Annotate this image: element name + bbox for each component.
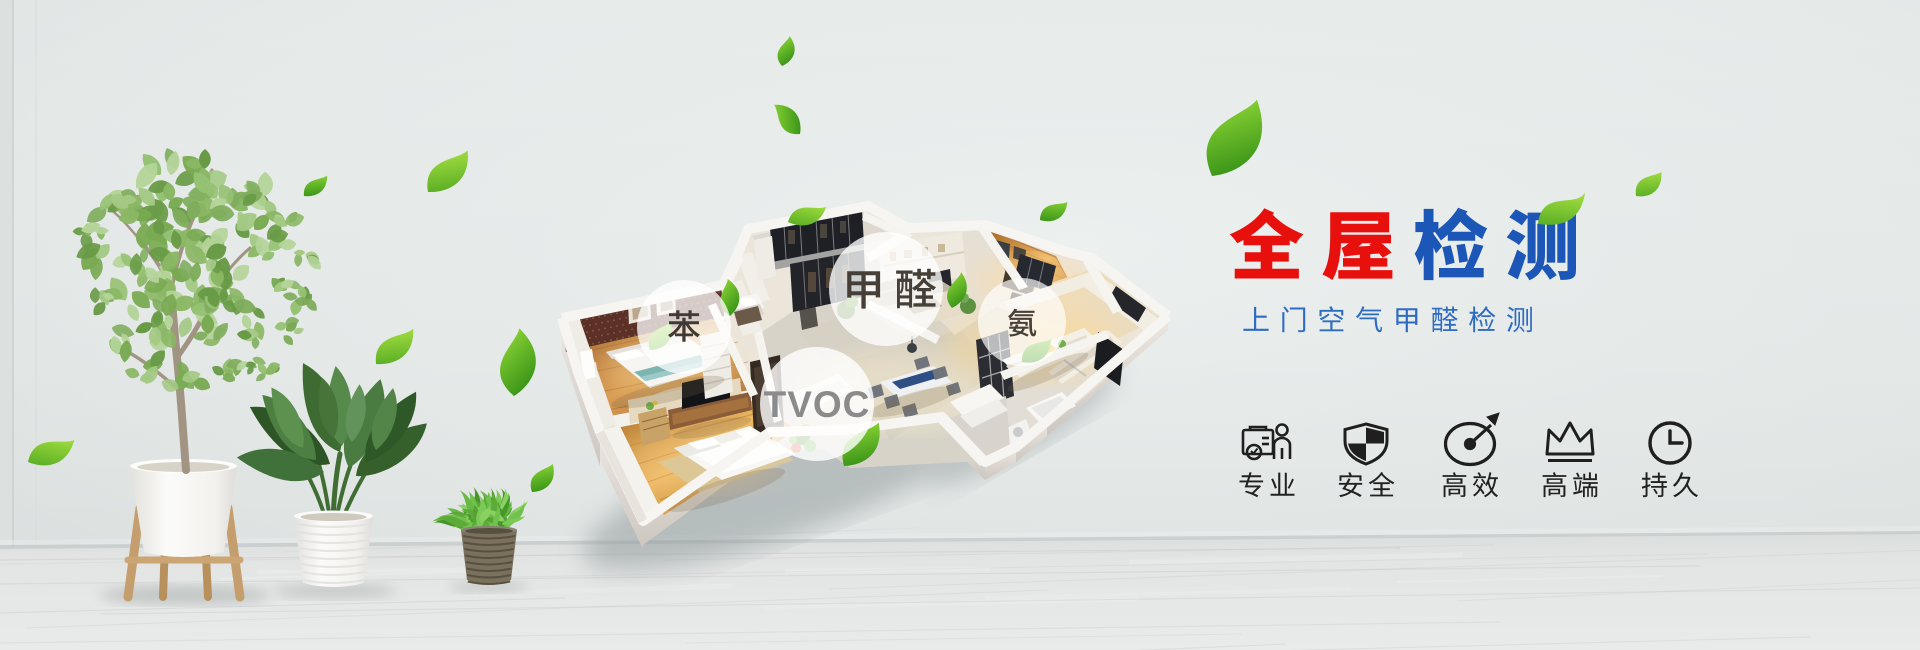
svg-text:TVOC: TVOC [764, 384, 871, 425]
